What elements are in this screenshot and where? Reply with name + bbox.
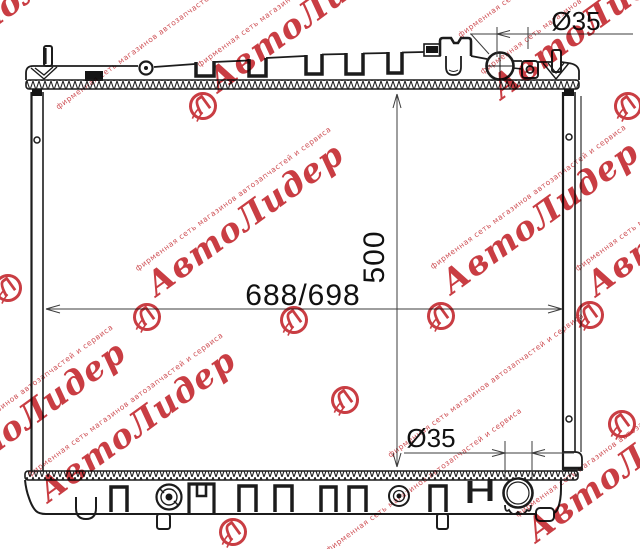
top-diameter-label: Ø35 [551, 6, 600, 36]
bottom-bolt [389, 486, 409, 506]
left-channel-hook [32, 89, 42, 96]
filler-side-bracket-top [426, 46, 438, 53]
bottom-bracket-left-notch [197, 484, 206, 496]
bottom-diameter-label: Ø35 [406, 423, 455, 453]
radiator-cap [487, 53, 514, 80]
filler-neck [440, 38, 471, 75]
drain-plug [157, 485, 182, 510]
bottom-right-tab [536, 508, 554, 521]
left-channel-hole [34, 137, 40, 143]
width-dimension-label: 688/698 [245, 279, 360, 312]
bottom-slot-2 [239, 486, 256, 512]
right-channel-hole-top [566, 134, 572, 140]
dimension-lines [46, 27, 633, 480]
top-slot-1 [196, 61, 214, 76]
bottom-u-notch [76, 497, 96, 519]
right-side-channel [563, 89, 582, 470]
top-slot-5 [388, 52, 402, 73]
top-tank-right-end [568, 63, 579, 80]
bottom-slot-4 [321, 487, 336, 512]
dimension-height [393, 94, 401, 467]
right-channel-hook [564, 89, 574, 96]
bottom-tank [25, 479, 561, 530]
left-side-channel [32, 89, 44, 471]
bottom-stub-pipe [437, 514, 448, 529]
right-channel-hole-bottom [566, 416, 572, 422]
scanned-diagram-page: 688/698 500 Ø35 Ø35 фирменная сеть магаз… [0, 0, 640, 549]
top-crimp-band [26, 80, 579, 89]
bottom-bracket-left [189, 484, 214, 513]
overflow-bracket-hole [527, 66, 534, 73]
top-knob-center [144, 66, 148, 70]
bottom-slot-1 [111, 487, 127, 512]
outlet-pipe [504, 479, 533, 515]
bottom-crimp-band [25, 471, 578, 480]
bottom-slot-3 [275, 486, 292, 512]
radiator-diagram: 688/698 500 Ø35 Ø35 [0, 0, 640, 549]
top-tank [26, 38, 579, 81]
top-slot-2 [249, 58, 266, 76]
left-v-notch [31, 67, 57, 79]
bottom-slot-5 [349, 487, 366, 512]
dimension-labels: 688/698 500 Ø35 Ø35 [245, 6, 600, 453]
drain-stub-pipe [157, 514, 170, 529]
top-slot-3 [306, 54, 322, 74]
top-slot-4 [346, 53, 363, 74]
overflow-bracket [522, 61, 538, 78]
bottom-slot-6 [430, 486, 446, 512]
height-dimension-label: 500 [358, 230, 391, 283]
cap-link-line [513, 68, 522, 69]
